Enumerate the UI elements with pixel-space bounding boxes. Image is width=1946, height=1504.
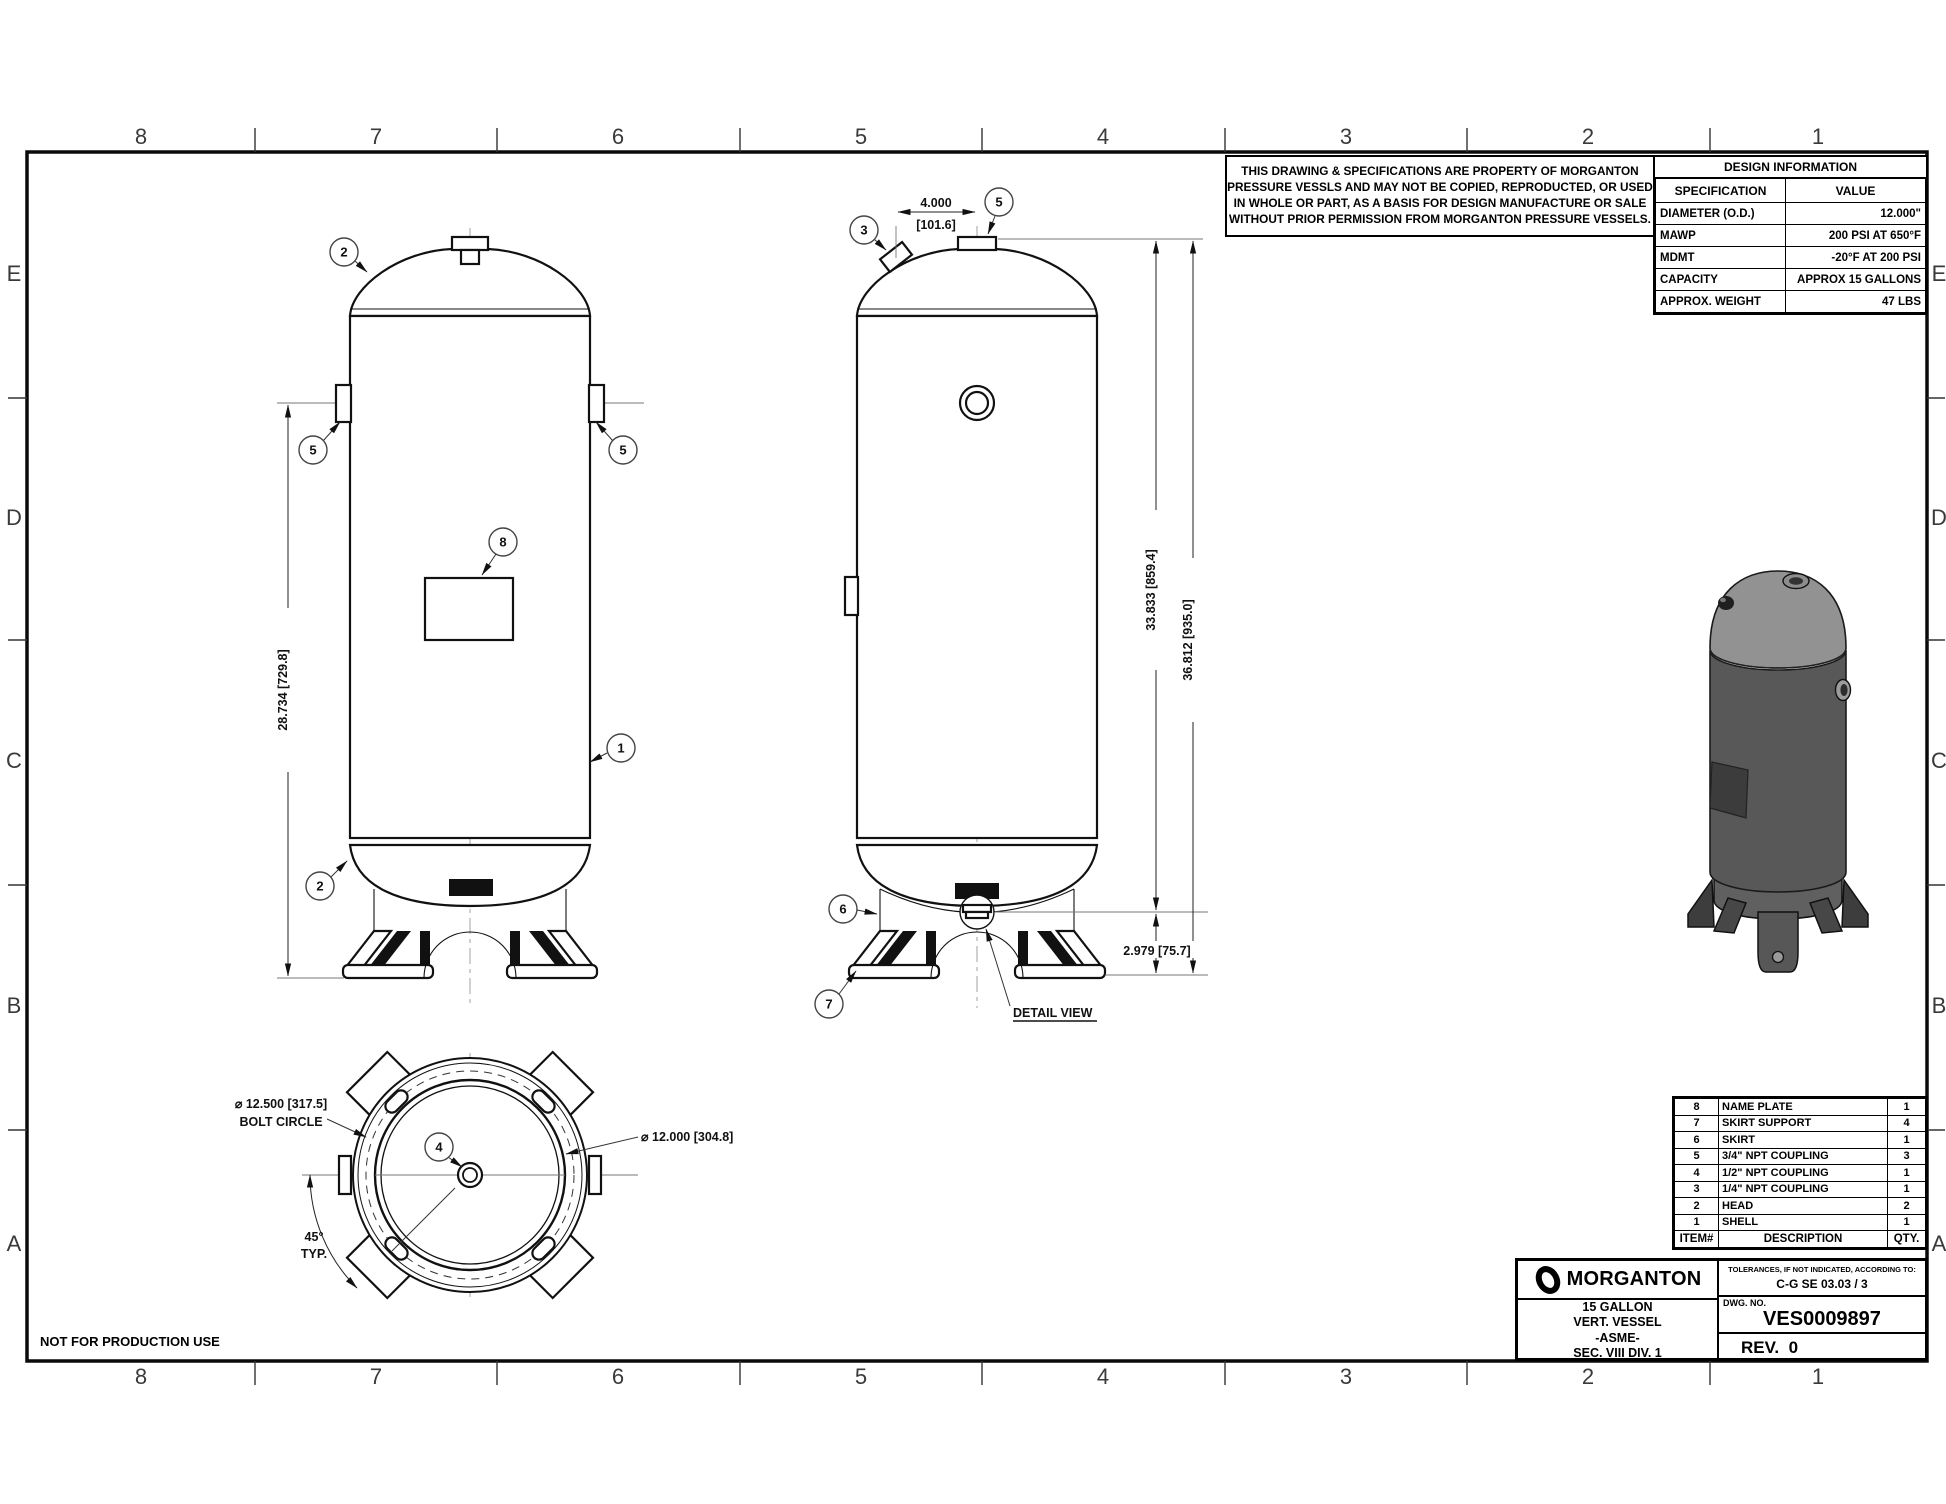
front-view: 28.734 [729.8] 2 5 5 8 1 2 <box>276 228 644 1008</box>
table-row: 1SHELL1 <box>1675 1214 1926 1231</box>
dim-skirt-height: 2.979 [75.7] <box>1116 914 1198 973</box>
front-bottom-head <box>350 845 590 906</box>
brand-logo: MORGANTON <box>1518 1261 1717 1300</box>
svg-text:5: 5 <box>995 195 1002 210</box>
detail-view-label: DETAIL VIEW <box>1013 1006 1093 1020</box>
bottom-view: 45° TYP. ⌀ 12.500 [317.5] BOLT CIRCLE ⌀ … <box>235 1052 733 1298</box>
grid-col-label: 3 <box>1326 124 1366 150</box>
value-col-header: VALUE <box>1786 179 1926 203</box>
product-description: 15 GALLON VERT. VESSEL -ASME- SEC. VIII … <box>1518 1300 1717 1361</box>
side-left-coupling <box>845 577 858 615</box>
grid-col-label: 5 <box>841 124 881 150</box>
side-port-inner <box>966 392 988 414</box>
svg-text:3: 3 <box>860 223 867 238</box>
parts-list-table: 8NAME PLATE1 7SKIRT SUPPORT4 6SKIRT1 53/… <box>1672 1096 1928 1250</box>
grid-col-label: 3 <box>1326 1364 1366 1390</box>
grid-row-label: C <box>4 748 24 774</box>
iso-name-plate <box>1710 762 1748 818</box>
grid-row-label: A <box>4 1231 24 1257</box>
grid-row-label: E <box>4 261 24 287</box>
copyright-line: PRESSURE VESSLS AND MAY NOT BE COPIED, R… <box>1227 180 1653 196</box>
table-row: 41/2" NPT COUPLING1 <box>1675 1165 1926 1182</box>
drawing-number-cell: DWG. NO. VES0009897 <box>1719 1297 1925 1334</box>
morganton-o-icon <box>1534 1266 1564 1294</box>
svg-text:6: 6 <box>839 902 846 917</box>
side-view: DETAIL VIEW 4.000 [101.6] 33.833 [859.4]… <box>815 188 1208 1021</box>
balloon-2-bottom: 2 <box>306 861 347 900</box>
svg-text:4.000: 4.000 <box>920 196 951 210</box>
front-weld-band <box>449 879 493 896</box>
grid-row-label: B <box>1929 993 1946 1019</box>
design-info-title: DESIGN INFORMATION <box>1655 157 1926 178</box>
grid-row-label: D <box>4 505 24 531</box>
spec-col-header: SPECIFICATION <box>1656 179 1786 203</box>
side-top-coupling <box>958 237 996 250</box>
svg-text:5: 5 <box>619 443 626 458</box>
grid-col-label: 7 <box>356 124 396 150</box>
table-row: MAWP200 PSI AT 650°F <box>1656 225 1926 247</box>
svg-text:7: 7 <box>825 997 832 1012</box>
grid-col-label: 2 <box>1568 124 1608 150</box>
svg-text:33.833 [859.4]: 33.833 [859.4] <box>1144 549 1158 630</box>
revision-cell: REV. 0 <box>1719 1334 1925 1361</box>
svg-text:2.979 [75.7]: 2.979 [75.7] <box>1123 944 1190 958</box>
title-block: MORGANTON 15 GALLON VERT. VESSEL -ASME- … <box>1515 1258 1928 1361</box>
balloon-5-right: 5 <box>596 422 637 464</box>
iso-head-plug <box>1718 596 1734 610</box>
copyright-notice: THIS DRAWING & SPECIFICATIONS ARE PROPER… <box>1225 155 1655 237</box>
parts-list-header-row: ITEM# DESCRIPTION QTY. <box>1675 1231 1926 1248</box>
dim-overall-2: 36.812 [935.0] <box>1181 241 1201 973</box>
grid-col-label: 4 <box>1083 1364 1123 1390</box>
brand-name: MORGANTON <box>1567 1268 1702 1291</box>
tolerances-cell: TOLERANCES, IF NOT INDICATED, ACCORDING … <box>1719 1261 1925 1297</box>
drawing-number: VES0009897 <box>1719 1308 1925 1331</box>
drawing-sheet: 28.734 [729.8] 2 5 5 8 1 2 <box>0 0 1946 1504</box>
svg-text:⌀ 12.500 [317.5]: ⌀ 12.500 [317.5] <box>235 1097 327 1111</box>
grid-col-label: 8 <box>121 124 161 150</box>
grid-col-label: 6 <box>598 124 638 150</box>
svg-text:36.812 [935.0]: 36.812 [935.0] <box>1181 599 1195 680</box>
svg-text:4: 4 <box>435 1140 443 1155</box>
dim-overall-1: 33.833 [859.4] <box>1144 241 1164 910</box>
svg-text:1: 1 <box>617 741 624 756</box>
table-row: 31/4" NPT COUPLING1 <box>1675 1181 1926 1198</box>
table-row: 7SKIRT SUPPORT4 <box>1675 1115 1926 1132</box>
balloon-7: 7 <box>815 971 856 1018</box>
balloon-5-left: 5 <box>299 422 340 464</box>
svg-text:45°: 45° <box>305 1230 324 1244</box>
table-row: APPROX. WEIGHT47 LBS <box>1656 291 1926 313</box>
svg-text:TYP.: TYP. <box>301 1247 327 1261</box>
balloon-3: 3 <box>850 216 886 250</box>
grid-row-label: A <box>1929 1231 1946 1257</box>
svg-text:BOLT CIRCLE: BOLT CIRCLE <box>239 1115 322 1129</box>
grid-col-label: 6 <box>598 1364 638 1390</box>
grid-row-label: D <box>1929 505 1946 531</box>
table-row: 8NAME PLATE1 <box>1675 1099 1926 1116</box>
design-info-table: DESIGN INFORMATION SPECIFICATION VALUE D… <box>1653 155 1928 315</box>
grid-col-label: 5 <box>841 1364 881 1390</box>
svg-text:⌀ 12.000 [304.8]: ⌀ 12.000 [304.8] <box>641 1130 733 1144</box>
svg-text:2: 2 <box>340 245 347 260</box>
table-row: 6SKIRT1 <box>1675 1132 1926 1149</box>
grid-col-label: 1 <box>1798 124 1838 150</box>
table-row: MDMT-20°F AT 200 PSI <box>1656 247 1926 269</box>
balloon-6: 6 <box>829 895 877 923</box>
table-row: DIAMETER (O.D.)12.000" <box>1656 203 1926 225</box>
copyright-line: WITHOUT PRIOR PERMISSION FROM MORGANTON … <box>1227 212 1653 228</box>
balloon-2-top: 2 <box>330 238 367 272</box>
grid-col-label: 8 <box>121 1364 161 1390</box>
iso-view <box>1688 571 1868 972</box>
table-row: CAPACITYAPPROX 15 GALLONS <box>1656 269 1926 291</box>
balloon-5-side: 5 <box>985 188 1013 234</box>
svg-text:5: 5 <box>309 443 316 458</box>
grid-col-label: 1 <box>1798 1364 1838 1390</box>
front-top-coupling <box>452 237 488 250</box>
front-left-coupling <box>336 385 351 422</box>
grid-col-label: 7 <box>356 1364 396 1390</box>
grid-row-label: E <box>1929 261 1946 287</box>
iso-head <box>1710 571 1846 668</box>
copyright-line: IN WHOLE OR PART, AS A BASIS FOR DESIGN … <box>1227 196 1653 212</box>
dim-front-height-text: 28.734 [729.8] <box>276 649 290 730</box>
not-for-production-label: NOT FOR PRODUCTION USE <box>40 1334 220 1349</box>
dim-bolt-circle: ⌀ 12.500 [317.5] BOLT CIRCLE <box>235 1097 366 1137</box>
front-top-plug <box>461 250 479 264</box>
grid-row-label: B <box>4 993 24 1019</box>
svg-text:8: 8 <box>499 535 506 550</box>
grid-row-label: C <box>1929 748 1946 774</box>
table-row: 53/4" NPT COUPLING3 <box>1675 1148 1926 1165</box>
svg-text:2: 2 <box>316 879 323 894</box>
grid-col-label: 2 <box>1568 1364 1608 1390</box>
copyright-line: THIS DRAWING & SPECIFICATIONS ARE PROPER… <box>1227 164 1653 180</box>
svg-text:[101.6]: [101.6] <box>916 218 956 232</box>
grid-col-label: 4 <box>1083 124 1123 150</box>
balloon-1: 1 <box>590 734 635 762</box>
front-right-coupling <box>589 385 604 422</box>
table-row: 2HEAD2 <box>1675 1198 1926 1215</box>
name-plate <box>425 578 513 640</box>
design-info-header-row: SPECIFICATION VALUE <box>1656 179 1926 203</box>
dim-outer-dia: ⌀ 12.000 [304.8] <box>566 1130 733 1154</box>
